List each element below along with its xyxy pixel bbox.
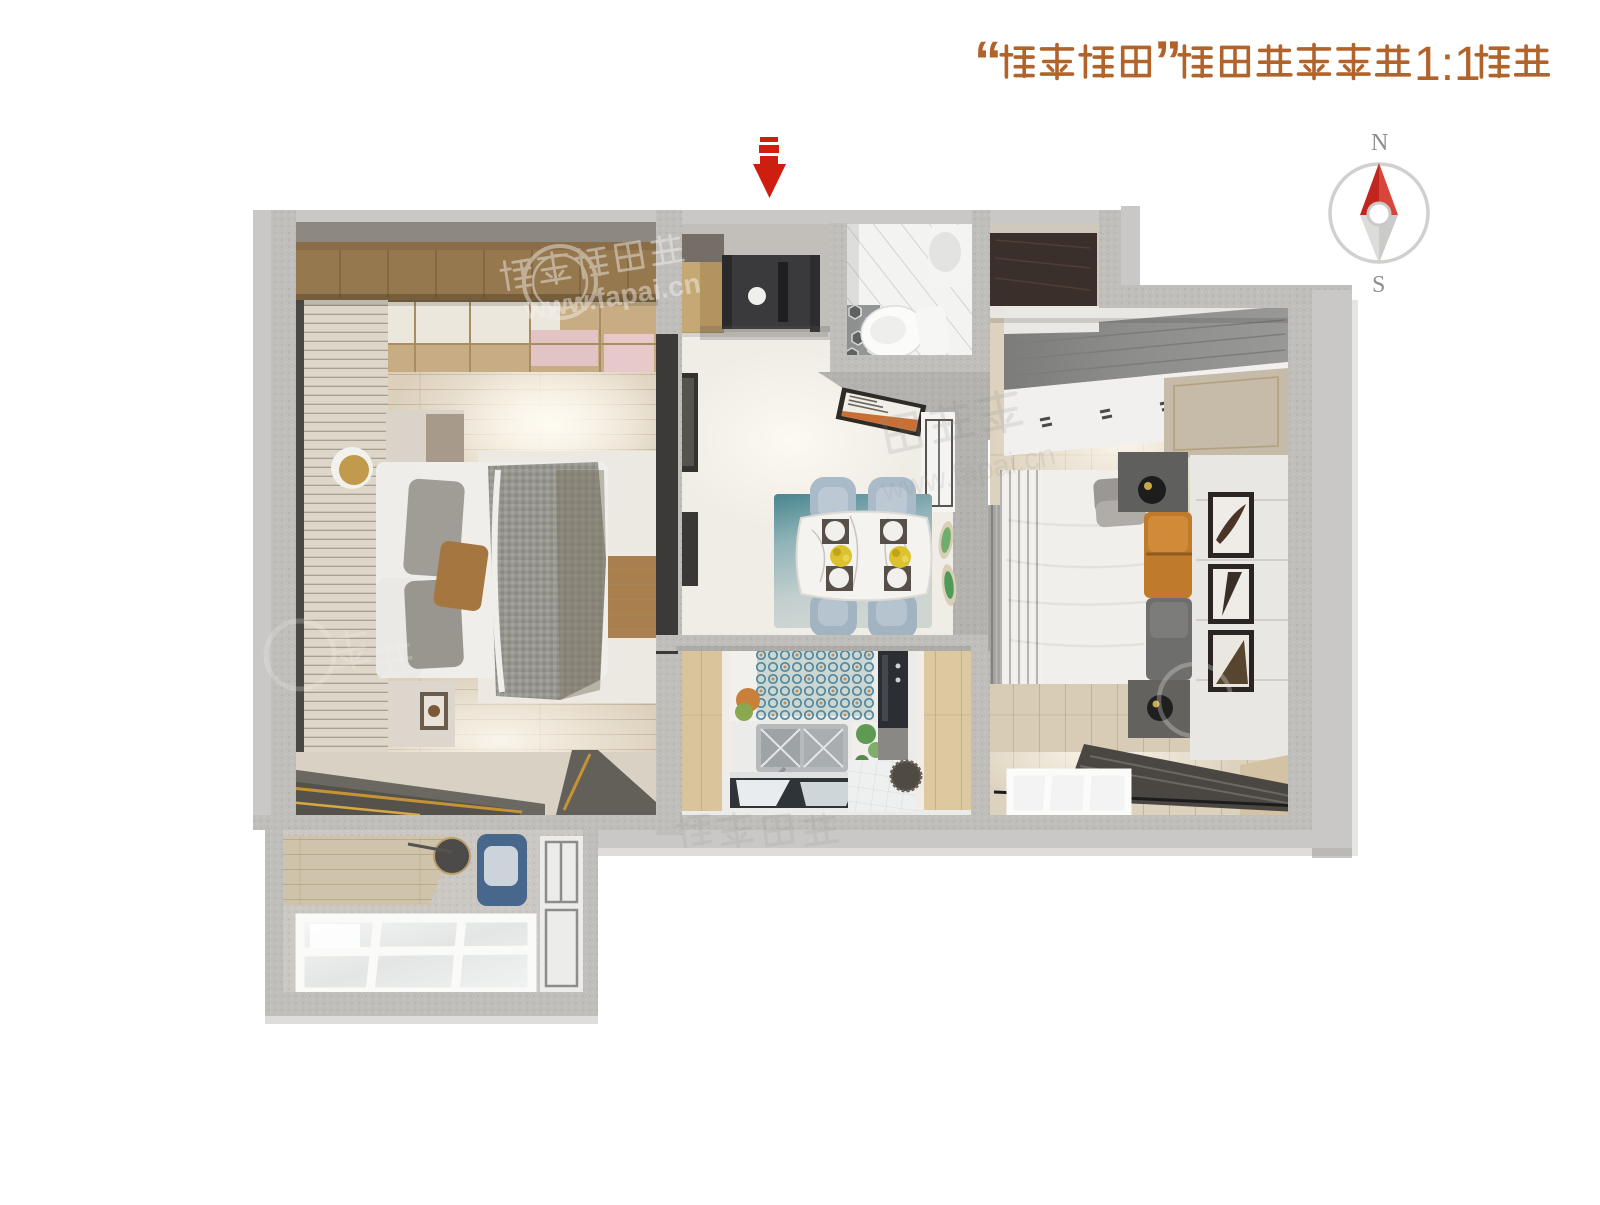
svg-text:1:1: 1:1 <box>1414 38 1481 91</box>
svg-text:N: N <box>1371 130 1388 156</box>
svg-text:S: S <box>1372 272 1385 298</box>
svg-text:”: ” <box>1154 29 1182 92</box>
svg-text:“: “ <box>974 29 1002 92</box>
